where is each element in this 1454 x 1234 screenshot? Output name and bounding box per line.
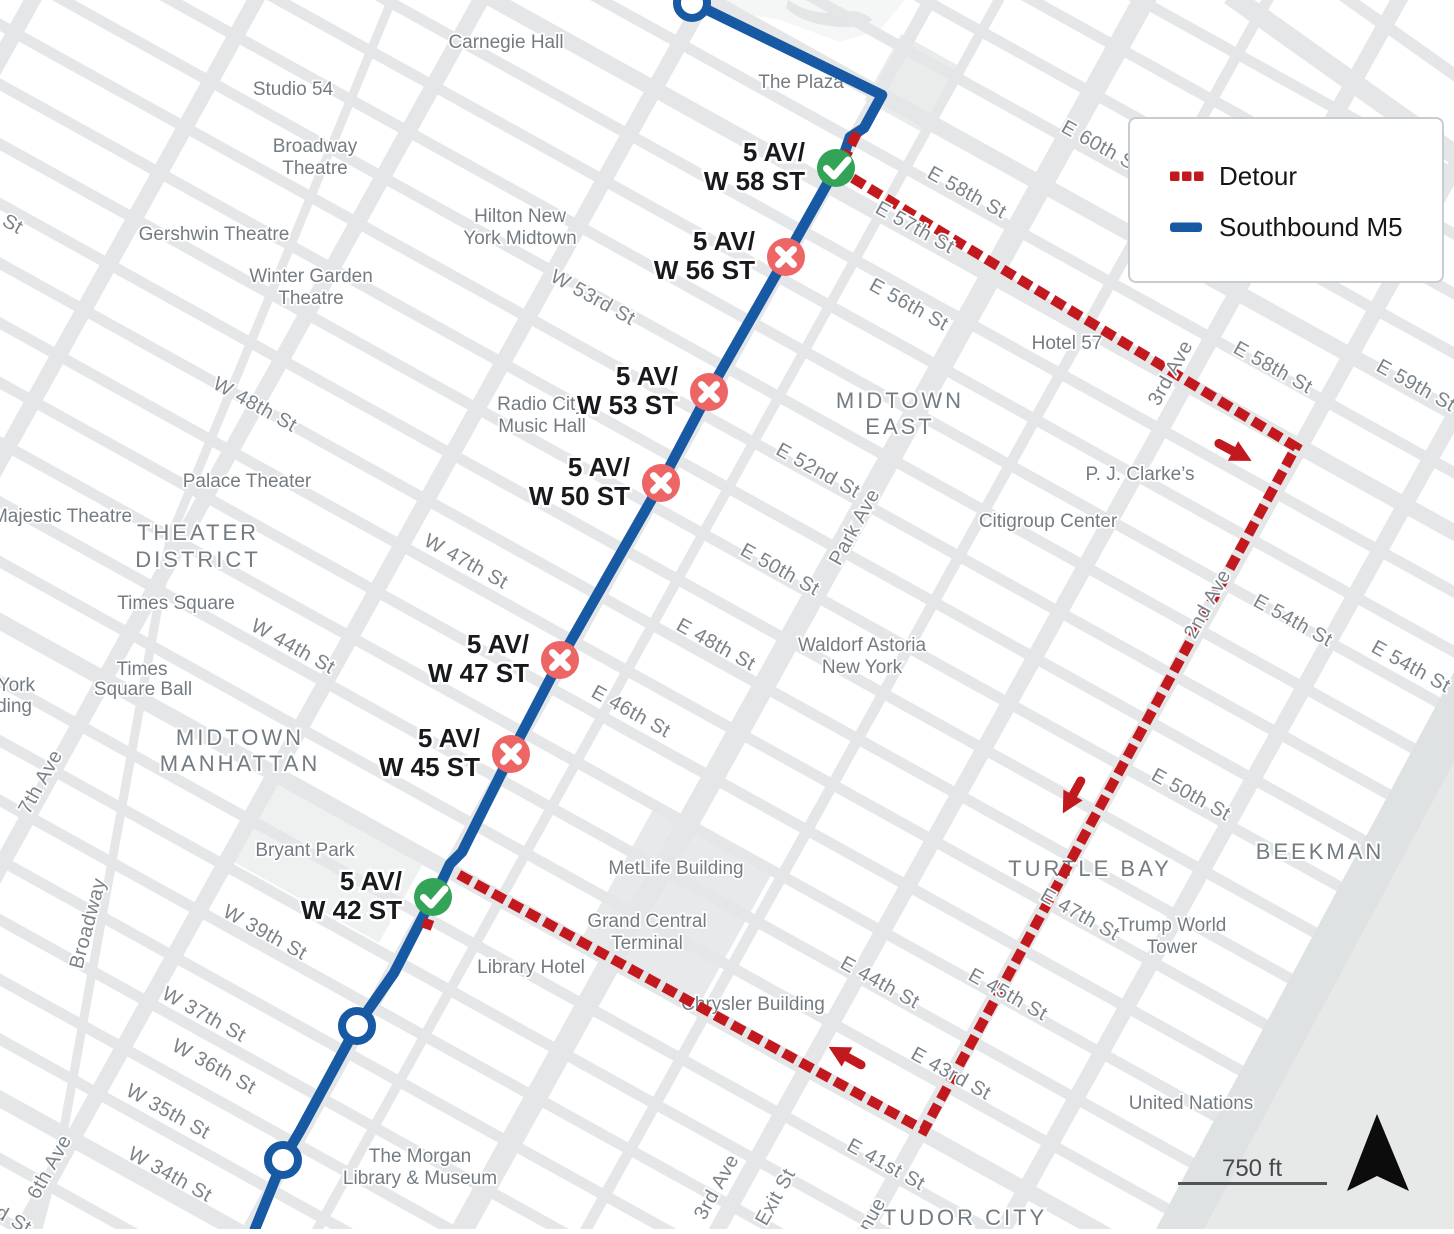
svg-text:Library & Museum: Library & Museum — [343, 1168, 497, 1189]
svg-text:Times Square: Times Square — [117, 593, 235, 614]
svg-text:MetLife Building: MetLife Building — [608, 858, 743, 879]
svg-text:Radio City: Radio City — [497, 394, 585, 415]
svg-text:United Nations: United Nations — [1129, 1093, 1254, 1114]
svg-text:5 AV/: 5 AV/ — [340, 866, 402, 896]
svg-text:BEEKMAN: BEEKMAN — [1256, 839, 1385, 864]
svg-text:W 42 ST: W 42 ST — [301, 895, 402, 925]
svg-text:Theatre: Theatre — [278, 288, 343, 309]
svg-text:5 AV/: 5 AV/ — [743, 137, 805, 167]
svg-text:Studio 54: Studio 54 — [253, 79, 334, 100]
svg-text:TURTLE BAY: TURTLE BAY — [1008, 856, 1172, 881]
svg-text:MANHATTAN: MANHATTAN — [160, 751, 321, 776]
svg-text:W 58 ST: W 58 ST — [704, 166, 805, 196]
svg-text:New York: New York — [822, 657, 903, 678]
svg-text:W 47 ST: W 47 ST — [428, 658, 529, 688]
svg-text:Detour: Detour — [1219, 161, 1297, 191]
svg-text:750 ft: 750 ft — [1222, 1155, 1282, 1182]
svg-text:Music Hall: Music Hall — [498, 416, 586, 437]
svg-text:Times: Times — [116, 659, 167, 680]
svg-text:P. J. Clarke’s: P. J. Clarke’s — [1085, 464, 1194, 485]
svg-text:MIDTOWN: MIDTOWN — [836, 388, 964, 413]
svg-text:5 AV/: 5 AV/ — [616, 361, 678, 391]
svg-text:5 AV/: 5 AV/ — [693, 226, 755, 256]
svg-text:Palace Theater: Palace Theater — [183, 471, 312, 492]
svg-text:Tower: Tower — [1147, 937, 1198, 958]
svg-text:Trump World: Trump World — [1118, 915, 1227, 936]
svg-text:Hotel 57: Hotel 57 — [1032, 333, 1103, 354]
svg-text:5 AV/: 5 AV/ — [418, 723, 480, 753]
svg-text:W 53 ST: W 53 ST — [577, 390, 678, 420]
svg-text:The Morgan: The Morgan — [369, 1146, 471, 1167]
svg-text:Theatre: Theatre — [282, 158, 347, 179]
svg-text:Square Ball: Square Ball — [94, 679, 192, 700]
svg-text:Carnegie Hall: Carnegie Hall — [448, 32, 563, 53]
svg-text:W 50 ST: W 50 ST — [529, 481, 630, 511]
svg-text:W 56 ST: W 56 ST — [654, 255, 755, 285]
svg-text:EAST: EAST — [865, 414, 934, 439]
svg-text:Gershwin Theatre: Gershwin Theatre — [139, 224, 290, 245]
svg-text:York: York — [0, 675, 35, 696]
svg-text:5 AV/: 5 AV/ — [568, 452, 630, 482]
svg-text:Citigroup Center: Citigroup Center — [979, 511, 1118, 532]
svg-text:Bryant Park: Bryant Park — [255, 840, 355, 861]
svg-text:MIDTOWN: MIDTOWN — [176, 725, 304, 750]
svg-text:Waldorf Astoria: Waldorf Astoria — [798, 635, 927, 656]
svg-text:Library Hotel: Library Hotel — [477, 957, 585, 978]
svg-text:Terminal: Terminal — [611, 933, 683, 954]
svg-text:W 45 ST: W 45 ST — [379, 752, 480, 782]
svg-text:THEATER: THEATER — [137, 520, 259, 545]
svg-text:York Midtown: York Midtown — [463, 228, 576, 249]
svg-text:Hilton New: Hilton New — [474, 206, 566, 227]
svg-text:Majestic Theatre: Majestic Theatre — [0, 506, 132, 527]
svg-text:5 AV/: 5 AV/ — [467, 629, 529, 659]
svg-text:ding: ding — [0, 696, 32, 717]
svg-text:Broadway: Broadway — [273, 136, 358, 157]
svg-text:Southbound M5: Southbound M5 — [1219, 212, 1403, 242]
svg-text:Grand Central: Grand Central — [587, 911, 706, 932]
svg-text:DISTRICT: DISTRICT — [135, 547, 260, 572]
svg-text:TUDOR CITY: TUDOR CITY — [883, 1205, 1047, 1229]
svg-text:Winter Garden: Winter Garden — [249, 266, 373, 287]
